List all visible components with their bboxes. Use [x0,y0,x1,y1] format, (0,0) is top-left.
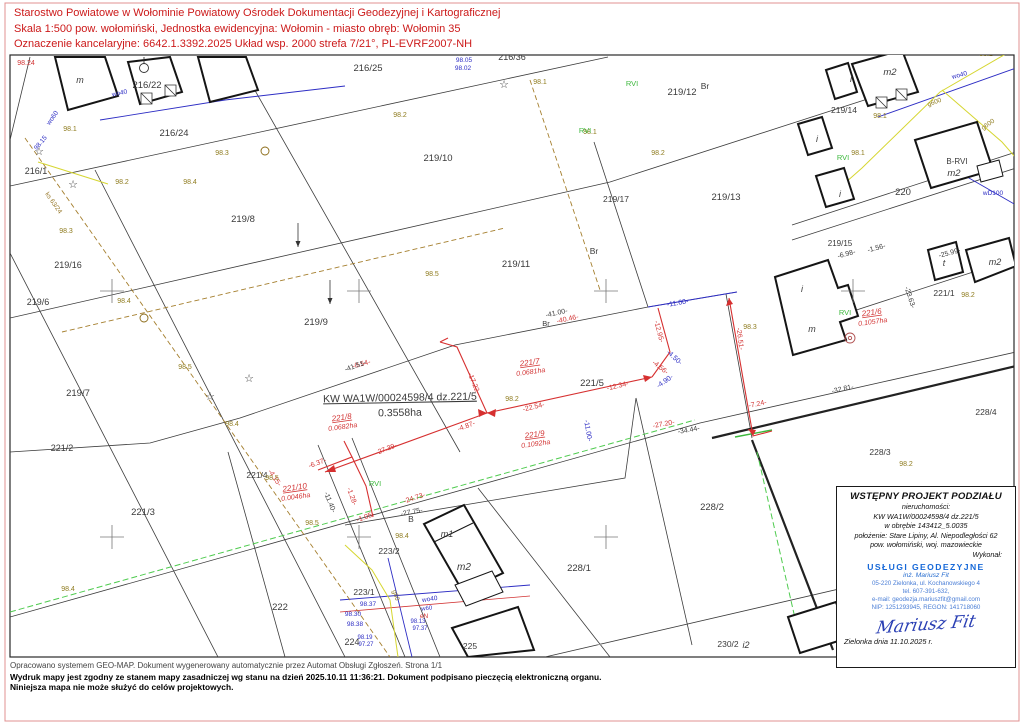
map-label: 220 [895,187,911,198]
grid-cross [100,525,124,549]
map-label: RVI [369,479,381,488]
map-label: 98.4 [395,533,409,540]
map-label: 216/25 [353,63,382,74]
green-dashed-lines [10,420,800,640]
map-label: 221/6 [860,307,883,319]
map-label: RVI [837,153,849,162]
company-phone: tel. 607-391-632, [840,588,1012,596]
well-symbol [848,336,851,339]
map-label: RVI [839,308,851,317]
map-label: ks 63/24 [43,191,63,215]
map-label: 219/10 [423,153,452,164]
circle-marker [140,314,148,322]
flow-arrow [328,298,333,304]
map-label: 98.4 [117,298,131,305]
map-label: 219/9 [304,317,328,328]
map-label: 219/6 [27,297,50,307]
map-label: 97.37 [412,626,428,632]
map-label: -4.56- [651,359,670,376]
map-label: B-RVI [946,157,967,166]
map-label: 221/5 [580,378,604,389]
header-line-authority: Starostwo Powiatowe w Wołominie Powiatow… [14,6,500,22]
map-label: -22.54- [522,401,546,413]
map-label: 98.2 [393,112,407,119]
footer-line-disclaimer: Niniejsza mapa nie może służyć do celów … [10,682,601,693]
company-email: e-mail: geodezja.mariuszfit@gmail.com [840,596,1012,604]
info-box-line: w obrębie 143412_5.0035 [840,521,1012,531]
map-label: 98.30 [345,611,362,618]
map-label: 221/7 [518,357,541,369]
info-box-line: położenie: Stare Lipiny, Al. Niepodległo… [840,531,1012,541]
map-label: 98.2 [651,150,665,157]
map-label: 219/7 [66,388,90,399]
map-label: 221/9 [523,429,546,441]
map-label: 223/1 [353,587,375,597]
star-marker: ☆ [244,372,254,385]
map-label: eN [420,613,429,620]
company-address: 05-220 Zielonka, ul. Kochanowskiego 4 [840,580,1012,588]
map-label: -32.81- [831,384,855,396]
map-label: -1.28- [345,487,358,507]
map-label: 98.2 [961,292,975,299]
map-label: 216/22 [132,80,161,91]
map-label: 219/8 [231,214,255,225]
map-label: 221/2 [51,443,74,453]
map-label: 98.1 [533,79,547,86]
map-label: -12.95- [652,320,665,344]
map-label: 98.3 [743,324,757,331]
map-label: 97.27 [358,642,374,648]
map-label: wo60 [45,109,60,127]
map-label: 221/3 [131,507,155,518]
map-label: -1.56- [867,243,887,255]
company-person: inż. Mariusz Fit [840,572,1012,581]
map-label: m2 [989,257,1002,267]
map-label: -1.05- [356,511,376,524]
map-label: 98.2 [505,396,519,403]
map-label: -11.00- [582,419,593,442]
map-label: -41.51- [344,359,368,373]
map-label: m2 [883,67,897,78]
map-label: 98.05 [456,57,473,64]
map-label: Br [701,81,710,91]
map-label: 228/4 [975,407,997,417]
subdivision-info-box: WSTĘPNY PROJEKT PODZIAŁU nieruchomości: … [836,486,1016,668]
map-label: 230/2 [717,639,739,649]
map-label: 219/14 [831,105,857,115]
map-label: KW WA1W/00024598/4 dz.221/5 [323,391,477,406]
map-label: m [808,324,816,334]
star-marker: ☆ [499,78,509,91]
flow-arrow [296,241,301,247]
map-label: wo40 [950,70,968,81]
map-label: 98.5 [305,520,319,527]
header-line-reference: Oznaczenie kancelaryjne: 6642.1.3392.202… [14,37,500,53]
map-label: 228/2 [700,502,724,513]
sewer-dashed-lines [25,80,600,657]
map-label: 98.5 [178,364,192,371]
map-label: 0.1092ha [521,439,551,450]
map-label: -11.00- [666,298,689,309]
map-label: wD100 [982,190,1004,197]
map-label: 216/1 [25,166,48,176]
star-marker: ☆ [68,178,78,191]
star-marker: ☆ [205,390,215,403]
map-label: 98.02 [455,65,472,72]
map-label: 0.0681ha [516,367,546,378]
map-label: -6.37- [308,457,328,470]
map-label: 0.1057ha [858,317,888,328]
map-label: 219/12 [667,87,696,98]
map-label: -11.40- [322,491,337,514]
map-label: -6.98- [837,249,857,261]
circle-marker [261,147,269,155]
map-label: 98.1 [63,126,77,133]
info-box-line: KW WA1W/00024598/4 dz.221/5 [840,512,1012,522]
map-label: -27.39- [375,442,399,457]
map-label: 98.1 [851,150,865,157]
map-label: 98.3 [215,150,229,157]
map-label: 228/3 [869,447,891,457]
footer-line-system: Opracowano systemem GEO-MAP. Dokument wy… [10,661,601,672]
info-box-executor-label: Wykonał: [840,550,1012,560]
map-label: m [76,75,84,85]
map-label: 98.4 [225,421,239,428]
map-label: i2 [742,640,749,650]
map-label: 98.5 [425,271,439,278]
map-label: 222 [272,602,288,613]
grid-cross [594,525,618,549]
map-label: 228/1 [567,563,591,574]
grid-cross [347,525,371,549]
map-label: -23.63- [903,286,917,310]
map-label: -4.50- [665,349,684,367]
map-label: RVI [626,79,638,88]
map-label: 219/16 [54,260,82,270]
map-label: -12.34- [606,380,630,392]
map-label: m2 [457,562,471,573]
map-label: -4.87- [457,420,477,433]
map-label: 0.0046ha [281,492,311,503]
document-header: Starostwo Powiatowe w Wołominie Powiatow… [14,6,500,53]
map-label: 98.19 [357,635,373,641]
map-label: 216/36 [498,52,526,62]
map-label: wo40 [421,595,439,604]
map-label: 221/1 [933,288,955,298]
map-label: 216/24 [159,128,188,139]
map-label: 98.38 [347,621,364,628]
map-label: Br [590,246,599,256]
map-label: 219/13 [711,192,740,203]
map-label: 98.24 [17,60,35,67]
map-label: 0.3558ha [378,407,422,420]
map-label: 98.4 [183,179,197,186]
map-label: 98.1 [873,113,887,120]
map-label: 219/15 [828,239,853,248]
map-label: -34.44- [677,425,701,436]
map-label: 0.0682ha [328,422,358,433]
map-label: 98.2 [115,179,129,186]
map-label: 98.4 [61,586,75,593]
map-label: 223/2 [378,546,400,556]
map-label: 219/17 [603,194,629,204]
map-label: 98.2 [899,461,913,468]
map-label: g60 [390,589,400,602]
map-label: 221/8 [330,412,353,424]
map-label: Br [542,319,550,328]
map-label: 98.5 [265,475,279,482]
footer-line-validity: Wydruk mapy jest zgodny ze stanem mapy z… [10,672,601,683]
map-label: 98.37 [360,601,377,608]
info-box-title: WSTĘPNY PROJEKT PODZIAŁU [840,491,1012,502]
map-label: m2 [947,168,961,179]
header-line-scale: Skala 1:500 pow. wołomiński, Jednostka e… [14,22,500,38]
map-label: 98.3 [59,228,73,235]
grid-cross [594,279,618,303]
well-symbol [845,333,855,343]
cadastral-map-page: Starostwo Powiatowe w Wołominie Powiatow… [0,0,1024,724]
info-box-line: pow. wołomiński, woj. mazowieckie [840,540,1012,550]
company-name: USŁUGI GEODEZYJNE [840,562,1012,572]
grid-cross [347,279,371,303]
document-footer: Opracowano systemem GEO-MAP. Dokument wy… [10,661,601,693]
map-label: -4.90- [656,373,676,390]
info-box-line: nieruchomości: [840,502,1012,512]
map-label: 225 [463,641,477,651]
map-label: w60 [420,605,433,613]
map-label: m1 [441,529,454,539]
map-label: 219/11 [502,259,530,270]
map-label: RVI [579,126,591,135]
